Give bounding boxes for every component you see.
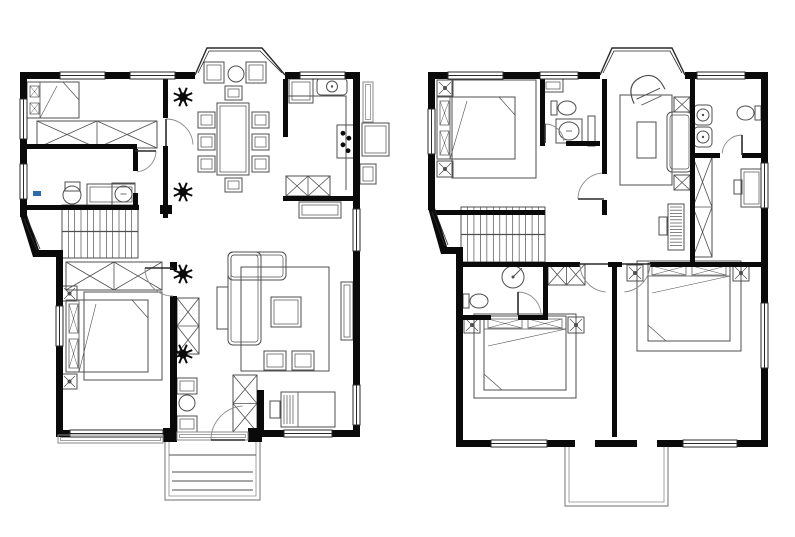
interior-wall (518, 315, 548, 320)
window (353, 209, 360, 251)
exterior-wall (262, 430, 284, 437)
piano (281, 392, 335, 427)
sideboard (299, 202, 341, 218)
staircase (62, 205, 138, 258)
nightstand (62, 374, 77, 389)
water-heater (63, 186, 81, 204)
exterior-wall (745, 72, 768, 79)
porch-rail (165, 442, 260, 500)
floor-plan-sheet (0, 0, 795, 537)
interior-wall (435, 210, 545, 215)
interior-wall (690, 158, 695, 262)
dining-chair (198, 156, 215, 172)
exterior-wall (20, 72, 60, 79)
bathroom-door (135, 151, 156, 172)
exterior-wall (20, 139, 27, 164)
interior-wall (543, 267, 548, 320)
interior-wall (163, 79, 168, 118)
bedroom-rug (637, 261, 741, 351)
interior-wall (461, 315, 491, 320)
interior-wall (27, 144, 137, 149)
piano-bench (270, 401, 280, 418)
window (284, 430, 332, 437)
window (448, 72, 503, 79)
interior-wall (283, 79, 288, 137)
wall-desk (741, 169, 762, 207)
double-bed (66, 300, 148, 372)
bay-chair (246, 62, 266, 83)
window (60, 72, 105, 79)
interior-wall (160, 205, 172, 214)
window (540, 72, 578, 79)
wardrobe (37, 121, 157, 148)
nightstand (627, 265, 643, 281)
floor-plans-drawing (0, 0, 795, 537)
window (761, 303, 768, 368)
bath-shelf (543, 79, 563, 92)
bedroom-door (580, 264, 608, 292)
ac-unit (360, 164, 376, 184)
interior-wall (456, 262, 548, 267)
exterior-wall (428, 79, 435, 109)
exterior-wall (547, 440, 575, 447)
exterior-wall (175, 72, 195, 79)
window (428, 109, 435, 154)
stool (674, 175, 690, 190)
staircase (461, 207, 545, 262)
nightstand (437, 161, 453, 177)
interior-wall (602, 79, 607, 174)
exterior-wall (578, 72, 600, 79)
window (761, 163, 768, 208)
exterior-wall (20, 79, 27, 99)
piano (668, 204, 684, 250)
exterior-wall (20, 199, 27, 217)
window (20, 164, 27, 199)
hall-wardrobe (233, 375, 257, 432)
bay-table (228, 66, 244, 82)
dining-chair (198, 112, 215, 128)
interior-wall (602, 200, 607, 215)
window (70, 430, 163, 437)
exterior-wall (56, 250, 63, 306)
interior-wall (650, 262, 768, 267)
interior-wall (133, 149, 138, 171)
coffee-table (271, 297, 301, 327)
desk-chair (625, 70, 667, 107)
dining-chair (252, 156, 269, 172)
interior-wall (566, 141, 600, 146)
shower (502, 266, 524, 288)
kitchen-sink (317, 78, 347, 95)
double-sink (694, 105, 712, 125)
exterior-wall (503, 72, 540, 79)
interior-wall (608, 262, 622, 267)
window (300, 72, 345, 79)
side-table (217, 287, 228, 329)
exterior-wall (353, 425, 360, 437)
window (20, 99, 27, 139)
master-bedroom-door (578, 173, 604, 199)
exterior-wall (353, 251, 360, 385)
master-rug (452, 80, 536, 178)
dining-table (217, 103, 249, 175)
window (56, 306, 63, 346)
window (697, 72, 745, 79)
double-sink (694, 127, 712, 147)
dining-door (166, 119, 193, 146)
ottoman (292, 351, 314, 370)
floor-drain (33, 191, 41, 196)
window (130, 72, 175, 79)
exterior-wall (105, 72, 130, 79)
bedroom-door (622, 264, 650, 292)
study-sofa (667, 112, 692, 172)
shower-room-door (518, 292, 541, 315)
bathroom-door (722, 135, 742, 155)
stool (674, 97, 690, 112)
exterior-wall (56, 346, 63, 437)
exterior-wall (428, 72, 448, 79)
window (353, 385, 360, 425)
window-sill (363, 82, 373, 122)
interior-wall (690, 153, 720, 158)
exterior-wall (761, 368, 768, 447)
entry-column (248, 428, 262, 442)
tv-cabinet (341, 282, 353, 340)
exterior-wall (685, 72, 697, 79)
kitchen-cabinet (286, 176, 330, 196)
potted-plant (174, 88, 193, 107)
tall-wardrobe (693, 157, 712, 257)
potted-plant (174, 183, 193, 202)
exterior-wall (761, 208, 768, 303)
bedroom-rug (474, 314, 576, 398)
dining-chair (252, 134, 269, 150)
dining-chair (198, 134, 215, 150)
interior-wall (257, 390, 264, 433)
exterior-wall (761, 79, 768, 163)
window (683, 440, 737, 447)
dining-chair (225, 178, 242, 192)
interior-wall (548, 262, 580, 267)
single-bed (27, 82, 79, 118)
master-bed (437, 97, 515, 159)
entry-screen (177, 432, 248, 440)
bay-window (600, 48, 685, 75)
interior-wall (170, 296, 177, 437)
shoe-cabinet (177, 378, 197, 394)
exterior-wall (353, 79, 360, 209)
interior-wall (283, 196, 360, 201)
interior-wall (612, 267, 617, 437)
living-rug (241, 267, 329, 371)
double-bed (484, 316, 566, 390)
sofa-main (228, 252, 261, 345)
interior-wall (690, 79, 695, 155)
bathroom-door (545, 124, 564, 143)
second-floor-plan (428, 48, 768, 506)
exterior-wall (456, 247, 463, 447)
study-desk (620, 95, 672, 185)
first-floor-plan (20, 48, 389, 500)
cabinet (548, 264, 585, 285)
dining-chair (225, 86, 242, 100)
exterior-wall (595, 440, 637, 447)
toilet (463, 294, 488, 308)
sofa-chaise (228, 252, 286, 280)
entry-stool (179, 395, 195, 411)
balcony-rail (565, 447, 668, 506)
entry-column (163, 428, 177, 442)
interior-wall (27, 205, 139, 210)
toilet (551, 101, 576, 115)
exterior-wall (428, 154, 435, 210)
ac-unit (362, 123, 389, 156)
exterior-wall (657, 440, 683, 447)
exterior-wall (285, 72, 300, 79)
fridge (289, 79, 313, 103)
shoe-cabinet (177, 416, 197, 432)
wardrobe (66, 262, 162, 290)
exterior-wall (456, 440, 491, 447)
window (491, 440, 547, 447)
toilet (737, 106, 761, 120)
piano-bench (659, 217, 667, 235)
bay-chair (204, 62, 224, 83)
dining-chair (252, 112, 269, 128)
double-bed (648, 263, 730, 341)
desk-inset (637, 122, 656, 158)
exterior-wall (345, 72, 360, 79)
ottoman (264, 351, 286, 370)
nightstand (437, 80, 453, 96)
